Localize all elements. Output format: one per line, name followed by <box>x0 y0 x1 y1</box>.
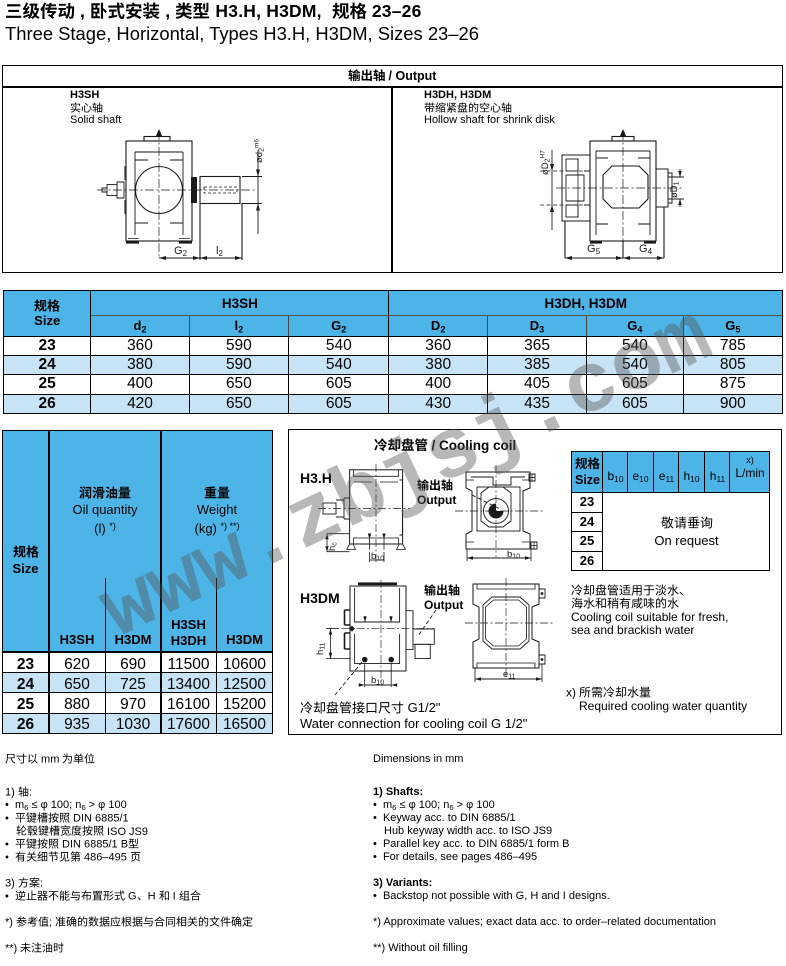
svg-text:øD1: øD1 <box>669 181 681 198</box>
svg-text:G4: G4 <box>639 243 653 256</box>
svg-text:l2: l2 <box>216 245 223 258</box>
svg-text:h11: h11 <box>315 642 327 655</box>
svg-text:e11: e11 <box>503 669 516 681</box>
svg-text:b10: b10 <box>371 675 384 687</box>
svg-text:b10: b10 <box>507 549 520 561</box>
svg-text:G5: G5 <box>587 243 601 256</box>
svg-text:ød2m6: ød2m6 <box>254 139 266 163</box>
svg-text:b10: b10 <box>371 551 384 563</box>
svg-text:øD2H7: øD2H7 <box>540 150 552 175</box>
svg-text:G2: G2 <box>174 245 188 258</box>
